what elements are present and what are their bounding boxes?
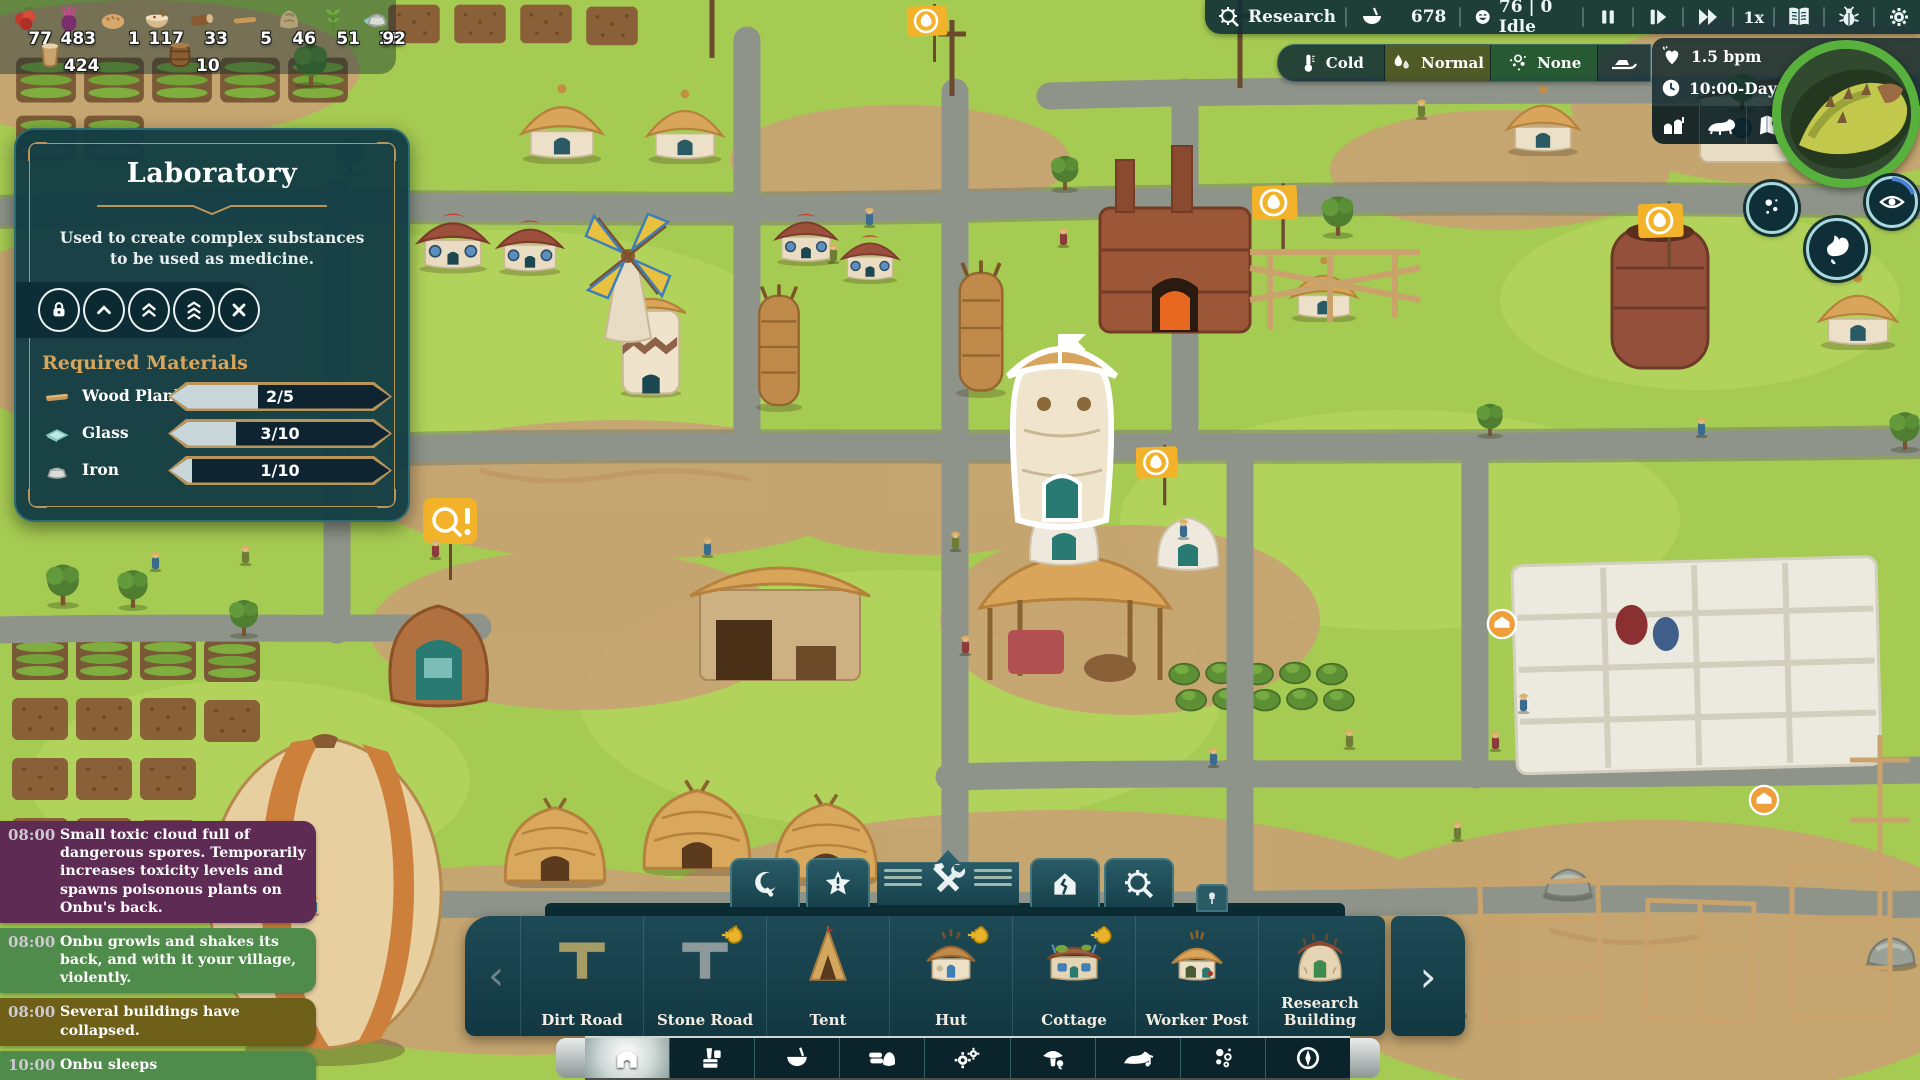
pushpin-icon bbox=[1204, 890, 1220, 906]
village-icon bbox=[1661, 113, 1689, 137]
build-item-research-building[interactable]: Research Building bbox=[1258, 916, 1381, 1036]
materials-heading: Required Materials bbox=[42, 352, 248, 374]
build-items-list: Dirt Road Stone Road Tent Hut Cottage Wo… bbox=[520, 916, 1381, 1036]
fast-forward-icon bbox=[1696, 5, 1720, 29]
material-name: Iron bbox=[82, 460, 119, 479]
category-production[interactable] bbox=[925, 1038, 1010, 1078]
progress-text: 1/10 bbox=[168, 456, 392, 485]
house-icon bbox=[613, 1045, 641, 1071]
research-gear-icon bbox=[1217, 5, 1241, 29]
happiness-icon bbox=[1474, 5, 1492, 29]
decor-lines bbox=[884, 869, 922, 886]
priority-high-button[interactable] bbox=[128, 288, 170, 332]
report-bug-button[interactable] bbox=[1834, 4, 1864, 30]
villagers-indicator[interactable]: 76 | 0 Idle bbox=[1470, 0, 1573, 37]
cost-badge-icon bbox=[720, 920, 750, 950]
material-row-iron: Iron 1/10 bbox=[16, 456, 408, 486]
glass-icon bbox=[44, 421, 70, 447]
divider bbox=[1459, 7, 1461, 27]
event-time: 08:00 bbox=[0, 1003, 60, 1039]
build-item-label: Research Building bbox=[1259, 995, 1381, 1030]
build-item-stone-road[interactable]: Stone Road bbox=[643, 916, 766, 1036]
event-entry-toxic-cloud[interactable]: 08:00 Small toxic cloud full of dangerou… bbox=[0, 821, 316, 923]
storage-icon bbox=[698, 1045, 726, 1071]
tab-priority[interactable] bbox=[806, 858, 870, 907]
corner-ornament bbox=[28, 489, 47, 508]
research-button[interactable]: Research bbox=[1217, 5, 1336, 29]
barrel-icon bbox=[164, 38, 196, 70]
iron-icon bbox=[44, 458, 70, 484]
progress-text: 3/10 bbox=[168, 419, 392, 448]
triple-chevron-up-icon bbox=[183, 299, 205, 321]
category-storage[interactable] bbox=[670, 1038, 755, 1078]
minimap-image bbox=[1781, 49, 1913, 181]
cracked-house-icon bbox=[1050, 869, 1080, 899]
clock-icon bbox=[1660, 77, 1682, 99]
gears-icon bbox=[952, 1045, 982, 1071]
divider bbox=[1732, 7, 1734, 27]
sickle-icon bbox=[750, 869, 780, 899]
barrel-count: 10 bbox=[196, 56, 226, 84]
spores-status: None bbox=[1491, 45, 1598, 81]
divider bbox=[1823, 7, 1825, 27]
laboratory-tooltip: Laboratory Used to create complex substa… bbox=[14, 128, 410, 522]
material-progress-bar: 2/5 bbox=[168, 382, 392, 411]
building-title: Laboratory bbox=[16, 158, 408, 189]
scroll-left-button[interactable]: ‹ bbox=[473, 916, 519, 1036]
close-icon bbox=[229, 300, 249, 320]
resource-bar: 77 483 1 117 33 5 46 51 18 92 424 1 bbox=[0, 0, 396, 74]
tab-demolish[interactable] bbox=[1030, 858, 1100, 907]
tab-harvest[interactable] bbox=[730, 858, 800, 907]
dirt-road-icon bbox=[521, 926, 643, 988]
fast-forward-button[interactable] bbox=[1693, 4, 1723, 30]
food-bowl-icon bbox=[1360, 5, 1384, 29]
play-button[interactable] bbox=[1643, 4, 1673, 30]
category-resources[interactable] bbox=[840, 1038, 925, 1078]
spores-cluster-icon bbox=[1209, 1045, 1237, 1071]
divider bbox=[1873, 7, 1875, 27]
bar-end-cap bbox=[1348, 1038, 1380, 1078]
play-icon bbox=[1647, 6, 1669, 28]
build-item-tent[interactable]: Tent bbox=[766, 916, 889, 1036]
build-item-label: Cottage bbox=[1041, 1012, 1107, 1029]
onbu-stomach-button[interactable] bbox=[1806, 218, 1868, 280]
material-row-glass: Glass 3/10 bbox=[16, 419, 408, 449]
stick-icon bbox=[230, 4, 260, 34]
food-count: 678 bbox=[1411, 7, 1447, 27]
logs-stone-icon bbox=[867, 1045, 897, 1071]
building-description: Used to create complex substances to be … bbox=[50, 228, 374, 270]
temperature-status: Cold bbox=[1278, 45, 1385, 81]
mushroom-icon bbox=[1039, 1045, 1067, 1071]
title-divider bbox=[97, 202, 327, 216]
villagers-count: 76 | 0 Idle bbox=[1499, 0, 1569, 37]
stomach-icon bbox=[1820, 232, 1854, 266]
spores-overlay-button[interactable] bbox=[1746, 182, 1798, 234]
research-label: Research bbox=[1248, 7, 1336, 27]
event-time: 10:00 bbox=[0, 1056, 60, 1074]
priority-max-button[interactable] bbox=[173, 288, 215, 332]
category-expedition[interactable] bbox=[1266, 1038, 1350, 1078]
category-housing[interactable] bbox=[585, 1038, 670, 1078]
build-item-label: Worker Post bbox=[1146, 1012, 1249, 1029]
onbu-view-button[interactable] bbox=[1700, 106, 1748, 144]
pause-icon bbox=[1598, 7, 1618, 27]
category-food[interactable] bbox=[755, 1038, 840, 1078]
book-icon bbox=[1786, 4, 1812, 30]
material-row-wood-plank: Wood Plank 2/5 bbox=[16, 382, 408, 412]
encyclopedia-button[interactable] bbox=[1784, 4, 1814, 30]
divider bbox=[1682, 7, 1684, 27]
star-alert-icon bbox=[823, 869, 853, 899]
gear-icon bbox=[1887, 5, 1911, 29]
chevron-up-icon bbox=[93, 299, 115, 321]
event-entry-onbu-sleeps[interactable]: 10:00 Onbu sleeps bbox=[0, 1051, 316, 1080]
event-entry-buildings-collapsed[interactable]: 08:00 Several buildings have collapsed. bbox=[0, 998, 316, 1045]
compass-icon bbox=[1294, 1045, 1322, 1071]
resource-stick: 5 bbox=[226, 3, 270, 45]
resource-iron: 92 bbox=[396, 3, 440, 45]
build-item-cottage[interactable]: Cottage bbox=[1012, 916, 1135, 1036]
resource-bread: 1 bbox=[94, 3, 138, 45]
speed-label: 1x bbox=[1743, 8, 1764, 27]
divider bbox=[1345, 7, 1347, 27]
iron-count: 92 bbox=[382, 29, 406, 49]
material-progress-bar: 3/10 bbox=[168, 419, 392, 448]
event-time: 08:00 bbox=[0, 933, 60, 988]
material-progress-bar: 1/10 bbox=[168, 456, 392, 485]
resource-herbs: 51 bbox=[314, 3, 358, 45]
priority-up-button[interactable] bbox=[83, 288, 125, 332]
build-item-worker-post[interactable]: Worker Post bbox=[1135, 916, 1258, 1036]
sled-icon bbox=[1609, 51, 1639, 75]
weather-bar: Cold Normal None bbox=[1277, 44, 1651, 82]
divider bbox=[1582, 7, 1584, 27]
spores-dots-icon bbox=[1759, 195, 1785, 221]
building-actions bbox=[16, 282, 260, 338]
divider bbox=[1773, 7, 1775, 27]
lock-button[interactable] bbox=[38, 288, 80, 332]
hammer-wrench-icon bbox=[930, 860, 966, 896]
sled-indicator bbox=[1598, 45, 1650, 81]
category-spores[interactable] bbox=[1181, 1038, 1266, 1078]
spores-icon bbox=[1507, 52, 1529, 74]
bar-end-cap bbox=[556, 1038, 588, 1078]
onbu-minimap[interactable] bbox=[1772, 40, 1920, 188]
pin-toolbar-button[interactable] bbox=[1196, 884, 1228, 912]
build-item-label: Tent bbox=[810, 1012, 847, 1029]
build-item-label: Hut bbox=[935, 1012, 967, 1029]
spores-label: None bbox=[1537, 54, 1581, 72]
event-log: 08:00 Small toxic cloud full of dangerou… bbox=[0, 821, 316, 1080]
clay-pot-icon bbox=[34, 38, 66, 70]
tent-icon bbox=[767, 926, 889, 988]
game-window: 77 483 1 117 33 5 46 51 18 92 424 1 bbox=[0, 0, 1920, 1080]
pause-button[interactable] bbox=[1593, 4, 1623, 30]
event-text: Onbu growls and shakes its back, and wit… bbox=[60, 933, 306, 988]
build-item-dirt-road[interactable]: Dirt Road bbox=[520, 916, 643, 1036]
humidity-status: Normal bbox=[1385, 45, 1492, 81]
decor-lines bbox=[974, 869, 1012, 886]
visibility-button[interactable] bbox=[1866, 176, 1918, 228]
thermometer-icon bbox=[1298, 52, 1318, 74]
category-farming[interactable] bbox=[1011, 1038, 1096, 1078]
double-chevron-up-icon bbox=[138, 299, 160, 321]
corner-ornament bbox=[377, 489, 396, 508]
material-name: Glass bbox=[82, 423, 129, 442]
eye-progress-arc bbox=[1866, 176, 1918, 228]
build-items-panel: ‹ Dirt Road Stone Road Tent Hut Cottage … bbox=[465, 916, 1385, 1036]
heartbeat-value: 1.5 bpm bbox=[1691, 47, 1761, 66]
build-item-hut[interactable]: Hut bbox=[889, 916, 1012, 1036]
heartbeat-icon bbox=[1660, 45, 1684, 67]
resource-stone: 46 bbox=[270, 3, 314, 45]
settings-button[interactable] bbox=[1884, 4, 1914, 30]
cost-badge-icon bbox=[966, 920, 996, 950]
village-view-button[interactable] bbox=[1652, 106, 1700, 144]
build-item-label: Stone Road bbox=[657, 1012, 753, 1029]
top-status-bar: Research 678 76 | 0 Idle 1x bbox=[1205, 0, 1920, 34]
humidity-label: Normal bbox=[1421, 54, 1484, 72]
clay-count: 424 bbox=[64, 56, 96, 84]
resource-barrel: 10 bbox=[160, 40, 224, 80]
research-building-icon bbox=[1259, 926, 1381, 988]
tab-research[interactable] bbox=[1104, 858, 1174, 907]
build-category-bar bbox=[585, 1036, 1350, 1080]
event-text: Several buildings have collapsed. bbox=[60, 1003, 306, 1039]
wood-plank-icon bbox=[44, 384, 70, 410]
divider bbox=[1632, 7, 1634, 27]
bowl-spoon-icon bbox=[783, 1045, 811, 1071]
cost-badge-icon bbox=[1089, 920, 1119, 950]
speed-indicator: 1x bbox=[1743, 8, 1764, 27]
event-text: Small toxic cloud full of dangerous spor… bbox=[60, 826, 306, 917]
temperature-label: Cold bbox=[1326, 54, 1364, 72]
stone-count: 46 bbox=[292, 29, 316, 49]
scroll-right-button[interactable]: › bbox=[1391, 916, 1465, 1036]
onbu-creature-icon bbox=[1706, 114, 1740, 136]
selected-laboratory-building[interactable] bbox=[1008, 334, 1116, 527]
worker-post-icon bbox=[1136, 926, 1258, 988]
bread-icon bbox=[98, 4, 128, 34]
research-gear-magnifier-icon bbox=[1123, 868, 1155, 900]
onbu-care-icon bbox=[1122, 1045, 1154, 1071]
progress-text: 2/5 bbox=[168, 382, 392, 411]
event-entry-onbu-growls[interactable]: 08:00 Onbu growls and shakes its back, a… bbox=[0, 928, 316, 994]
resource-clay: 424 bbox=[30, 40, 94, 80]
food-indicator[interactable]: 678 bbox=[1356, 5, 1450, 29]
lock-icon bbox=[48, 299, 70, 321]
event-time: 08:00 bbox=[0, 826, 60, 917]
water-drops-icon bbox=[1391, 52, 1413, 74]
category-onbu[interactable] bbox=[1096, 1038, 1181, 1078]
bug-icon bbox=[1837, 5, 1861, 29]
build-item-label: Dirt Road bbox=[541, 1012, 622, 1029]
event-text: Onbu sleeps bbox=[60, 1056, 306, 1074]
cancel-button[interactable] bbox=[218, 288, 260, 332]
